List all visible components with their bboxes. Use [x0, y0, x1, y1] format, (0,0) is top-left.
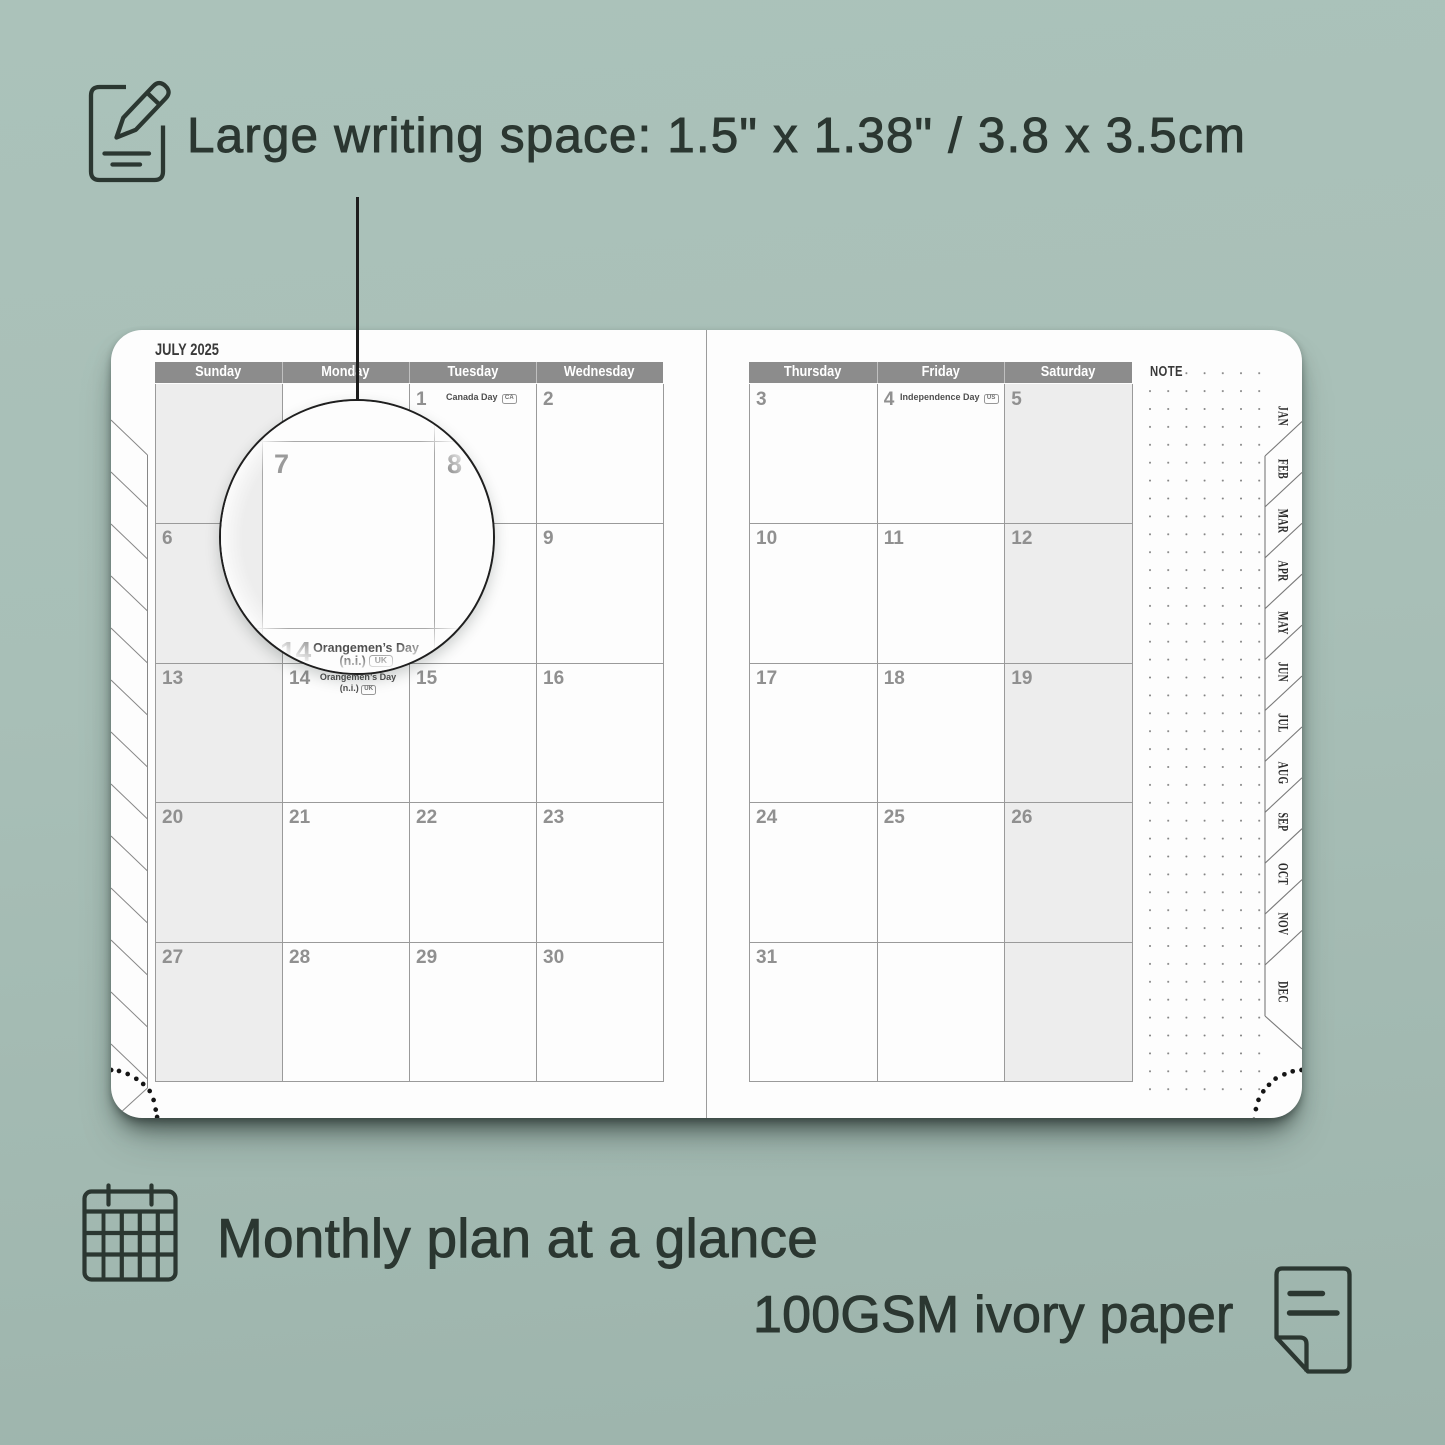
- svg-text:MAY: MAY: [1275, 611, 1291, 635]
- svg-text:SEP: SEP: [1275, 812, 1291, 831]
- svg-text:MAR: MAR: [1275, 509, 1291, 534]
- svg-text:NOV: NOV: [1275, 913, 1291, 936]
- svg-text:OCT: OCT: [1275, 863, 1291, 886]
- svg-text:JUN: JUN: [1275, 662, 1291, 682]
- svg-text:APR: APR: [1275, 560, 1291, 582]
- svg-text:DEC: DEC: [1275, 981, 1291, 1003]
- svg-text:AUG: AUG: [1275, 762, 1291, 785]
- svg-text:JAN: JAN: [1275, 406, 1291, 426]
- svg-text:FEB: FEB: [1275, 459, 1291, 479]
- svg-text:JUL: JUL: [1275, 713, 1291, 733]
